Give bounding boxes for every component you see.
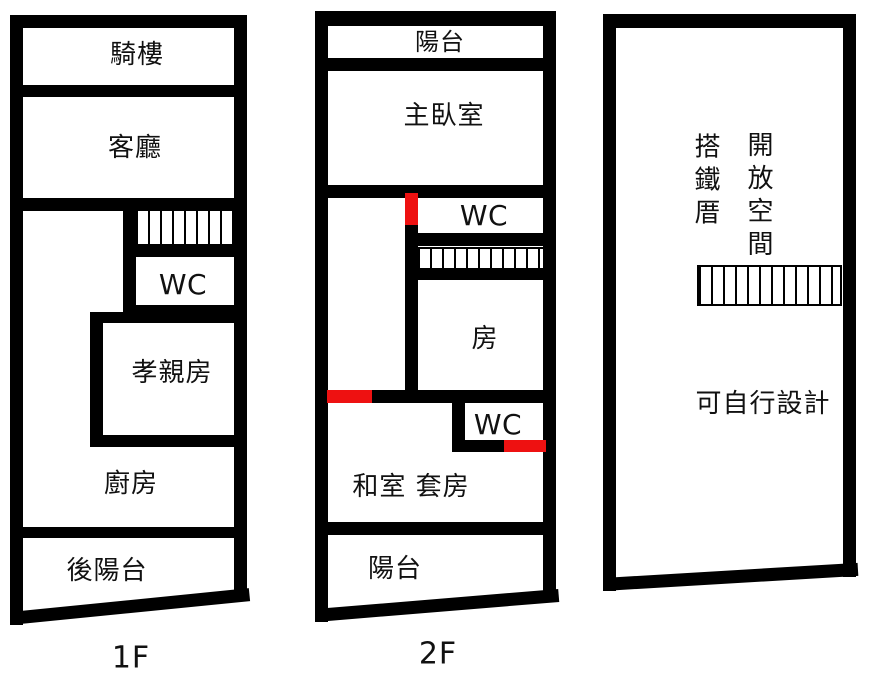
wall-outer-bottom — [603, 563, 858, 591]
room-label-open-space: 開放空間 — [742, 131, 772, 263]
floorplan-canvas: 騎樓 客廳 WC 孝親房 廚房 後陽台 1F 陽台 主臥室 WC 房 W — [0, 0, 889, 689]
wall-outer-top — [603, 14, 856, 28]
room-label-iron-shed: 搭鐵厝 — [689, 133, 719, 232]
stairs-hatch — [697, 265, 842, 306]
wall-outer-right — [843, 14, 856, 577]
floor-plan-top: 搭鐵厝 開放空間 可自行設計 — [0, 0, 889, 689]
wall-outer-left — [603, 14, 616, 591]
room-label-free-design: 可自行設計 — [695, 390, 830, 420]
